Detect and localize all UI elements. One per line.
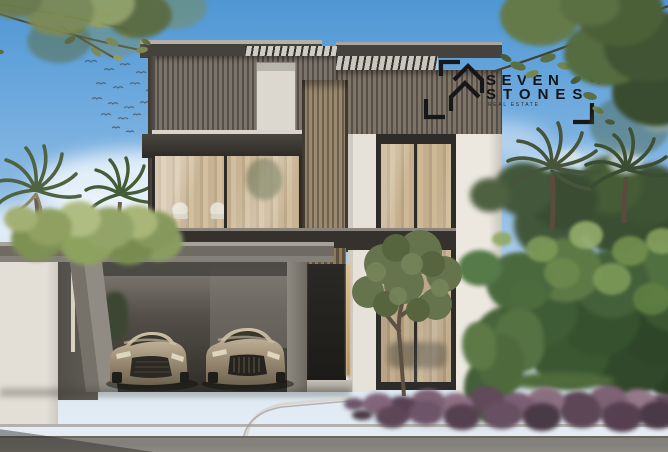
olive-tree (340, 212, 480, 400)
branch-top-right (440, 0, 668, 150)
villa-render-image: SEVEN STONES REAL ESTATE (0, 0, 668, 452)
garden-highlights-right (492, 232, 512, 246)
purple-flower-bed (352, 410, 372, 420)
car-left (106, 332, 198, 391)
curb-line (0, 424, 668, 427)
purple-flower-bed (344, 398, 364, 410)
branch-top-left (0, 0, 240, 110)
car-right (202, 328, 294, 391)
bushes-left (4, 206, 38, 232)
cars (100, 312, 300, 396)
lawn-patch (505, 372, 615, 390)
